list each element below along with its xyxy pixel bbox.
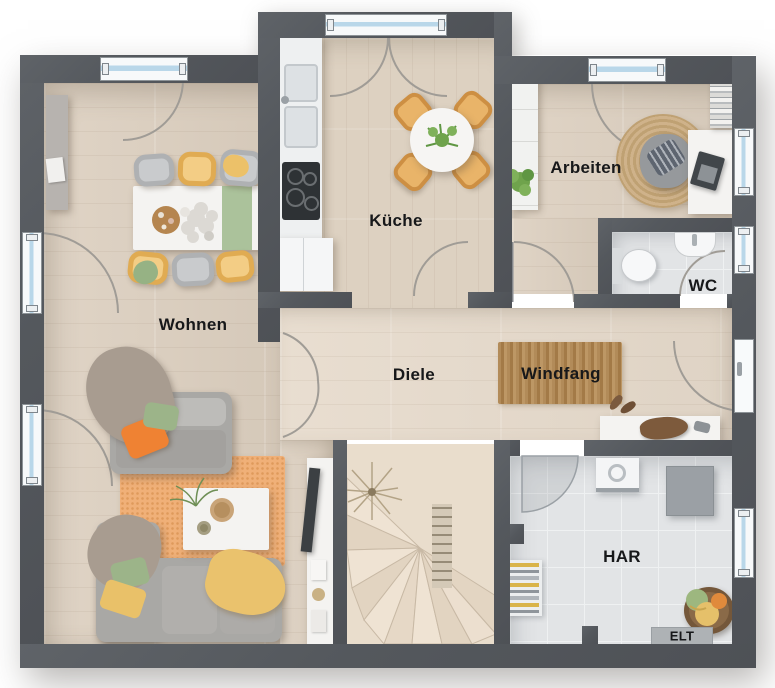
wall-wc-south [574,294,680,308]
wall-kueche-south-stub [468,292,512,308]
wall-wc-south-corner [727,294,732,308]
office-shelf-cabinet [512,78,538,210]
label-wc: WC [689,276,718,296]
wall-pilaster-har-west [510,524,524,544]
wall-exterior-left [20,55,44,666]
kitchen-sink [284,64,318,102]
pillow-green [142,401,179,431]
wall-pilaster-har-south [582,626,598,644]
wall-kueche-south [258,292,352,308]
boiler-unit [666,466,714,516]
wall-wc-north [598,218,732,232]
sideboard-cabinet [46,95,68,210]
window-wohnen-left-lower [22,404,42,486]
window-arbeiten-right [734,128,754,196]
refrigerator-door-split [303,238,304,291]
console-decor-candle [312,588,325,601]
wall-exterior-bottom [20,644,756,668]
kitchen-sink-2 [284,106,318,148]
label-windfang: Windfang [521,364,601,384]
refrigerator [276,238,333,291]
kitchen-faucet [281,96,289,104]
wall-har-north-right [584,440,732,456]
washing-machine-door [608,464,626,482]
window-wohnen-top [100,57,188,81]
dining-chair [177,151,216,186]
window-arbeiten-top [588,58,666,82]
window-wohnen-left-upper [22,232,42,314]
washing-machine-panel [596,488,639,492]
table-runner [222,186,252,250]
dining-chair [133,153,175,188]
console-decor-books-2 [311,610,326,632]
wall-har-west [494,440,510,644]
window-kueche-top [325,14,447,36]
label-elt: ELT [670,629,695,644]
cooktop-burner [286,188,305,207]
entrance-door-handle [737,362,742,376]
cooktop-burner [303,172,317,186]
label-har: HAR [603,547,641,567]
dining-chair [214,249,255,284]
magazine-on-cabinet [46,157,66,183]
label-arbeiten: Arbeiten [550,158,621,178]
console-decor-books [311,560,326,580]
window-har-right [734,508,754,578]
floor-arbeiten-entry [512,218,598,294]
wc-sink-faucet [692,234,697,246]
kitchen-round-table [410,108,474,172]
dining-chair [171,252,215,287]
window-wc-right [734,226,754,274]
cooktop-burner [287,168,304,185]
wall-stair-west [333,440,347,644]
floor-plan: Wohnen Küche Arbeiten WC Diele Windfang … [0,0,775,688]
entrance-door [734,339,754,413]
toilet-bowl [621,249,657,282]
drying-rack [506,560,542,616]
label-diele: Diele [393,365,435,385]
label-kueche: Küche [369,211,422,231]
coffee-table [183,488,269,550]
label-wohnen: Wohnen [159,315,228,335]
cooktop-burner [304,196,319,211]
